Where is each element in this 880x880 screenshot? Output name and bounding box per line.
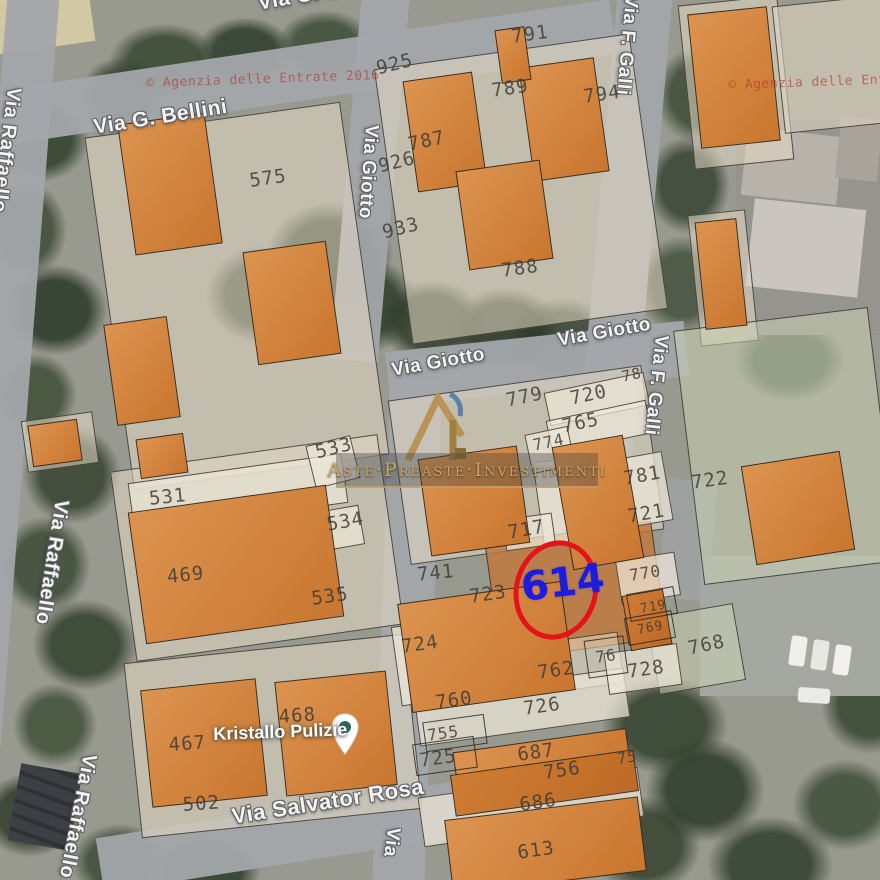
building-788	[455, 160, 553, 271]
parcel-label-502: 502	[182, 791, 221, 816]
street-label-via: Via	[378, 826, 403, 858]
logo-watermark: Aste·Preaste·Investimenti	[336, 453, 598, 488]
gray-roof	[746, 198, 867, 297]
parcel-label-76: 76	[594, 645, 618, 667]
parcel-label-467: 467	[168, 731, 207, 756]
parcel-label-469: 469	[166, 562, 205, 588]
building	[27, 419, 82, 468]
building	[741, 451, 855, 565]
cadastral-map: Via G. BelliniVia G. BelliniVia Raffaell…	[0, 0, 880, 880]
building	[242, 241, 341, 366]
logo-text: Aste·Preaste·Investimenti	[327, 459, 607, 481]
parcel-block	[772, 0, 880, 134]
building	[135, 433, 188, 479]
parcel-label-741: 741	[416, 560, 455, 586]
parcel-label-75: 75	[616, 747, 638, 768]
parked-car	[798, 687, 831, 704]
parcel-label-531: 531	[148, 484, 187, 510]
building	[117, 113, 223, 256]
